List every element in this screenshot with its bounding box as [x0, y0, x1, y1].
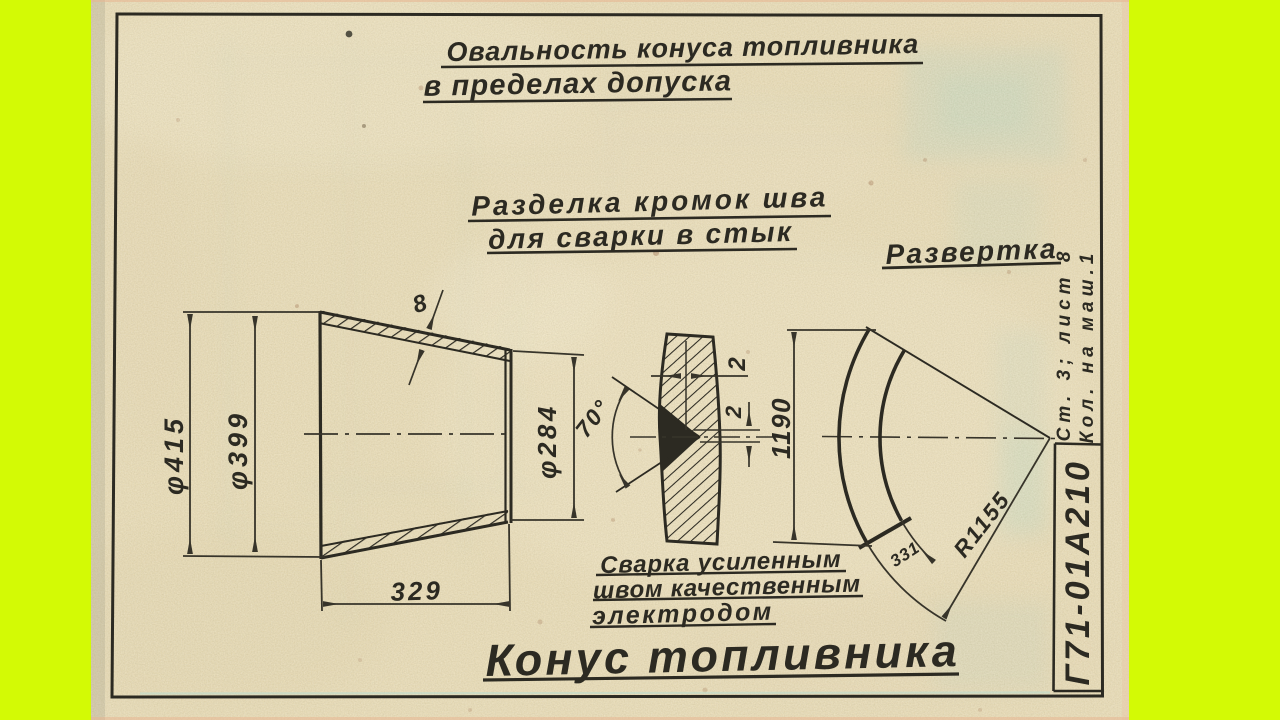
svg-text:2: 2	[724, 355, 751, 371]
svg-text:329: 329	[390, 575, 443, 607]
svg-text:в пределах допуска: в пределах допуска	[423, 65, 732, 102]
svg-text:φ284: φ284	[532, 403, 562, 479]
svg-text:Г71-01А210: Г71-01А210	[1059, 458, 1097, 685]
svg-text:φ415: φ415	[159, 415, 189, 495]
svg-text:2: 2	[721, 404, 746, 419]
svg-text:φ399: φ399	[223, 410, 253, 490]
svg-text:Кол. на маш.1: Кол. на маш.1	[1077, 249, 1098, 444]
svg-text:Ст. 3; лист 8: Ст. 3; лист 8	[1054, 247, 1075, 442]
svg-text:1190: 1190	[766, 397, 796, 459]
